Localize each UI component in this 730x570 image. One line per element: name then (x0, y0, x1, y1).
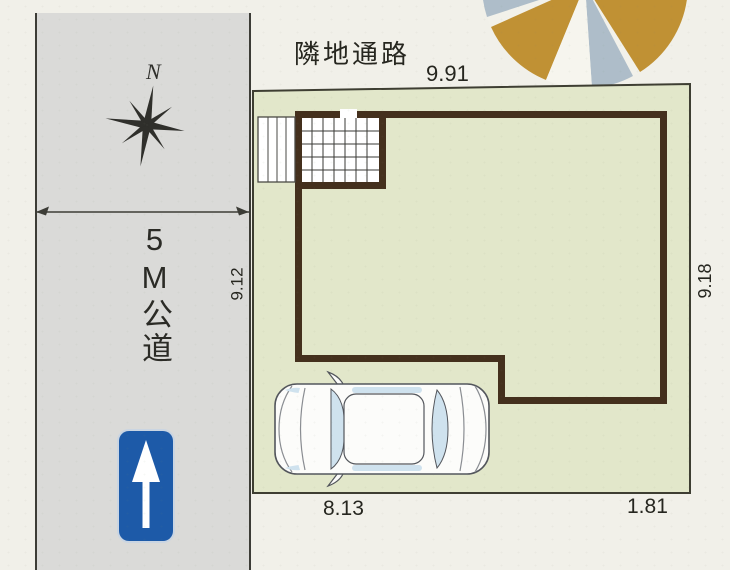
tree-icon (482, 0, 688, 88)
compass-rose-icon (98, 76, 197, 175)
dimension-arrow-left (36, 207, 49, 216)
arrow-head (132, 440, 160, 482)
compass-north-label: N (146, 61, 161, 83)
road-label: 5M公道 (126, 222, 170, 366)
neighbor-path-label: 隣地通路 (294, 41, 410, 67)
dimension-label-top: 9.91 (426, 63, 469, 85)
dimension-arrow-right (236, 207, 249, 216)
dimension-label-right: 9.18 (696, 263, 714, 298)
dimension-label-left: 9.12 (229, 267, 246, 300)
car-icon (275, 372, 489, 486)
site-plan-canvas: 隣地通路 9.91 9.18 9.12 8.13 1.81 5M公道 N (0, 0, 730, 570)
road-dimension-line (36, 207, 249, 216)
dimension-label-bottom-right: 1.81 (627, 496, 668, 517)
dimension-label-bottom-left: 8.13 (323, 498, 364, 519)
up-arrow-icon (119, 431, 173, 541)
entrance-door-gap (340, 109, 357, 118)
one-way-sign (119, 431, 173, 541)
entrance-stairs (258, 117, 295, 182)
site-plan-drawing (0, 0, 730, 570)
car-roof (344, 394, 424, 464)
arrow-shaft (143, 479, 150, 528)
car-side-window-bottom (352, 465, 422, 471)
car-side-window-top (352, 387, 422, 393)
entrance-porch (295, 109, 386, 189)
